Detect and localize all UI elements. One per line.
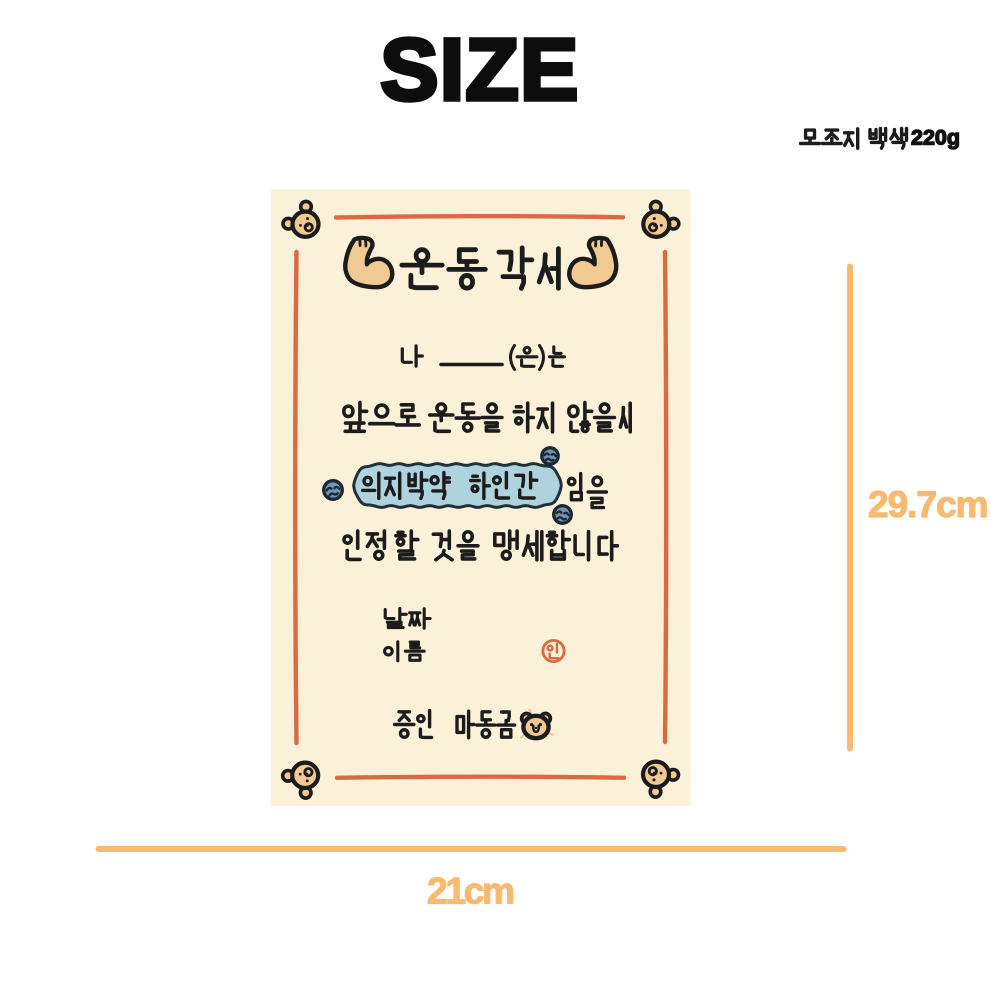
svg-text:SIZE: SIZE (380, 22, 579, 119)
svg-text:21cm: 21cm (427, 871, 513, 912)
svg-text:220g: 220g (911, 126, 960, 150)
svg-text:29.7cm: 29.7cm (868, 484, 988, 525)
